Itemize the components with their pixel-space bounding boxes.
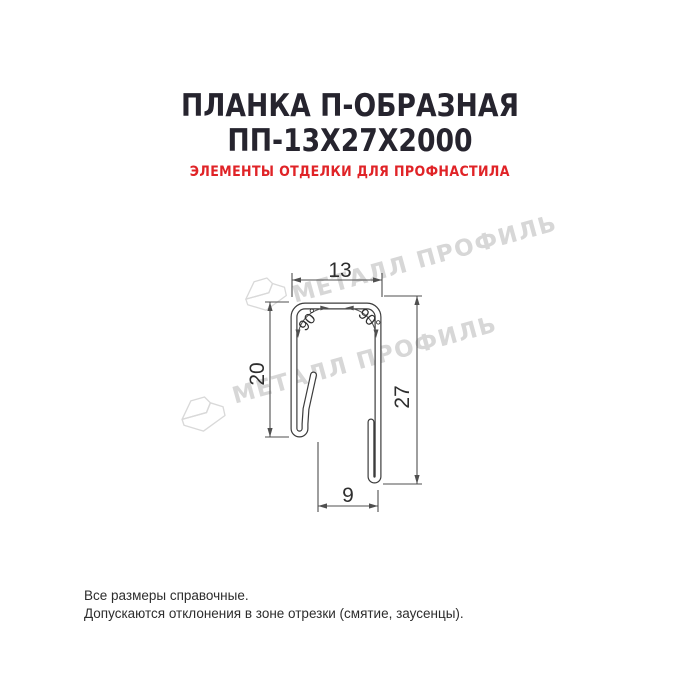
- dim-right-height-label: 27: [391, 385, 414, 408]
- dim-bottom-width-label: 9: [342, 484, 354, 507]
- dim-left-height-label: 20: [246, 362, 269, 385]
- footer-notes: Все размеры справочные. Допускаются откл…: [84, 587, 464, 622]
- dim-top-width-label: 13: [328, 259, 351, 282]
- footer-note-2: Допускаются отклонения в зоне отрезки (с…: [84, 605, 464, 623]
- footer-note-1: Все размеры справочные.: [84, 587, 464, 605]
- product-drawing-page: { "header": { "title_line1": "ПЛАНКА П-О…: [0, 0, 700, 700]
